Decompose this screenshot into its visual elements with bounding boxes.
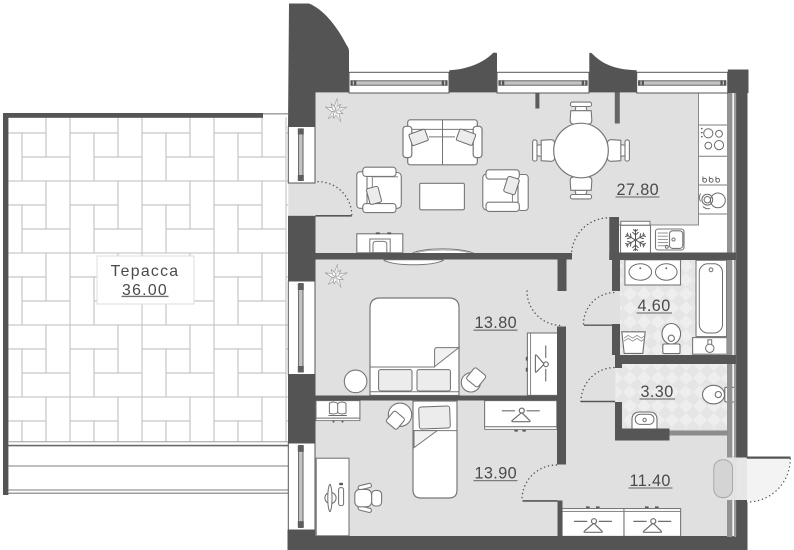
svg-text:3.30: 3.30 [641,383,674,401]
svg-text:27.80: 27.80 [617,181,660,199]
svg-text:11.40: 11.40 [630,472,671,490]
svg-text:13.90: 13.90 [475,464,518,482]
svg-text:4.60: 4.60 [638,297,671,315]
svg-text:Терасса: Терасса [111,263,180,280]
svg-text:13.80: 13.80 [475,314,518,332]
